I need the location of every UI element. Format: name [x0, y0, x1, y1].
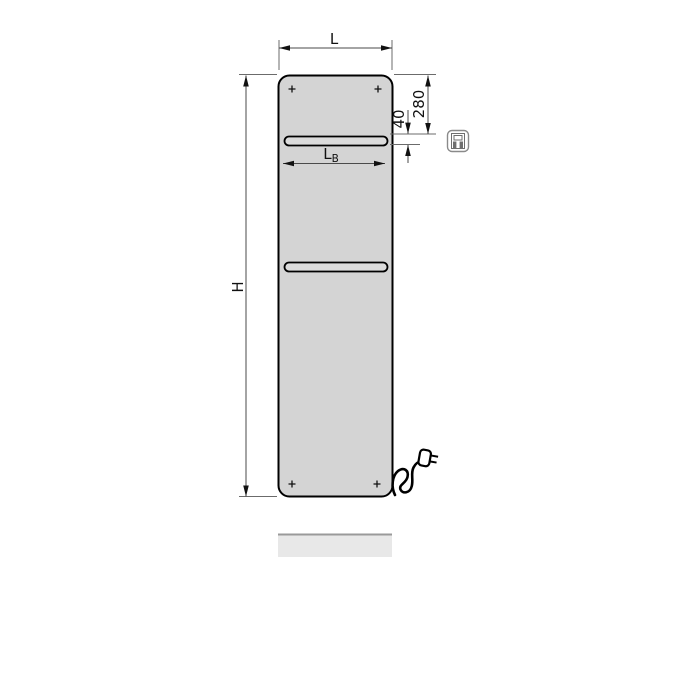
dimension-width: L [279, 30, 392, 48]
towel-bar-top [285, 137, 388, 146]
radiator-dimension-diagram: L H 280 40 LB [0, 0, 700, 700]
dimension-height: H [229, 76, 247, 497]
power-cord-assembly [393, 449, 439, 495]
floor-shadow-rect [278, 534, 392, 557]
power-plug-prong-top [431, 455, 438, 456]
floor-shadow [278, 534, 392, 557]
power-plug-body [418, 449, 432, 467]
power-cord [393, 462, 421, 496]
dim-label-bar-thickness: 40 [390, 109, 408, 128]
dim-label-height: H [229, 281, 247, 292]
electric-plug-icon-switch [454, 136, 462, 141]
dim-label-width: L [330, 30, 339, 48]
dimension-bar-offset: 280 [410, 76, 428, 135]
power-plug [418, 449, 439, 468]
towel-bar-middle [285, 263, 388, 272]
electric-plug-icon-leg-right [460, 142, 463, 149]
electric-plug-icon-leg-left [453, 142, 456, 149]
dim-label-bar-offset: 280 [410, 90, 428, 119]
power-plug-prong-bottom [430, 461, 437, 462]
electric-plug-icon [448, 131, 469, 152]
dim-label-bar-width-subscript: B [332, 153, 339, 165]
technical-drawing-canvas: L H 280 40 LB [0, 0, 700, 700]
